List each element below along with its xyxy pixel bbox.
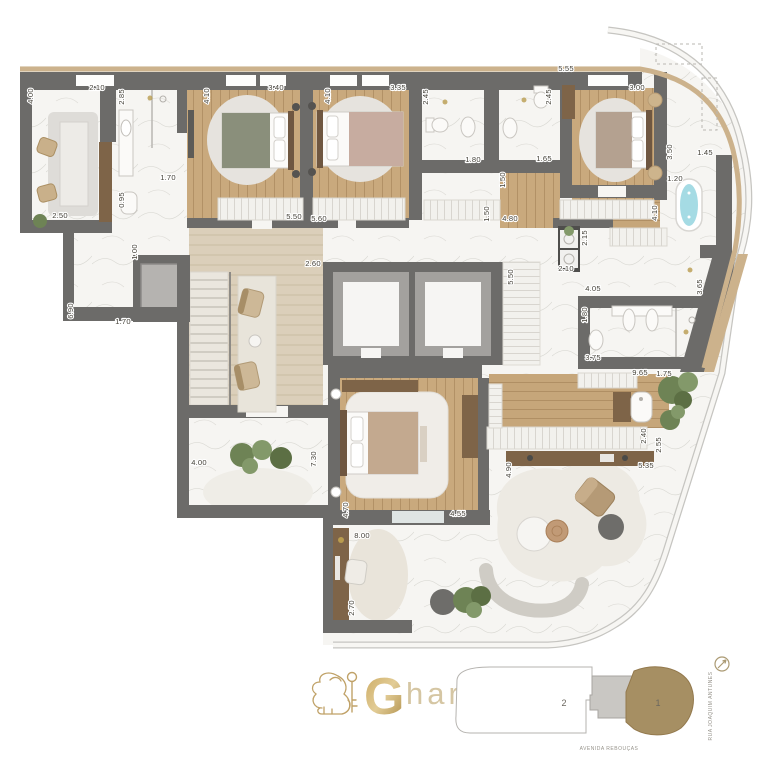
dimension-label: 2.10 xyxy=(89,83,105,92)
dimension-label: 2.70 xyxy=(347,600,356,616)
site-unit-1-label: 1 xyxy=(655,698,660,708)
dimension-label: 4.55 xyxy=(450,509,466,518)
dimension-label: 5.50 xyxy=(506,269,515,285)
dimension-label: 2.45 xyxy=(421,89,430,105)
logo-letter-g: G xyxy=(364,668,404,726)
dimension-label: 5.60 xyxy=(311,214,327,223)
dimension-label: 5.35 xyxy=(638,461,654,470)
dimension-label: 1.80 xyxy=(465,155,481,164)
dimension-label: 5.55 xyxy=(558,64,574,73)
dimension-label: 3.00 xyxy=(629,83,645,92)
dimension-label: 3.35 xyxy=(390,83,406,92)
dimension-label: 4.10 xyxy=(650,205,659,221)
floorplan-canvas: 4.002.102.854.103.404.103.352.452.455.55… xyxy=(0,0,768,768)
dimension-label: 3.65 xyxy=(695,279,704,295)
dimension-label: 3.40 xyxy=(268,83,284,92)
dimension-label: 0.95 xyxy=(117,192,126,208)
dimension-label: 2.10 xyxy=(558,264,574,273)
dimension-label: 1.80 xyxy=(580,307,589,323)
compass-icon xyxy=(715,657,729,671)
street-label-bottom: AVENIDA REBOUÇAS xyxy=(580,746,639,752)
dimension-label: 4.05 xyxy=(585,284,601,293)
dimension-label: 2.15 xyxy=(580,230,589,246)
staircase xyxy=(190,272,230,405)
family-room xyxy=(234,276,276,412)
dimension-label: 1.00 xyxy=(130,244,139,260)
dimension-label: 2.50 xyxy=(52,211,68,220)
dimension-label: 4.00 xyxy=(26,88,35,104)
key-icon xyxy=(348,673,358,713)
dimension-label: 4.80 xyxy=(502,214,518,223)
dimension-label: 1.50 xyxy=(498,172,507,188)
jacuzzi xyxy=(676,179,702,231)
dimension-label: 1.70 xyxy=(160,173,176,182)
dimension-label: 2.60 xyxy=(305,259,321,268)
logo-text-har: har xyxy=(406,676,463,711)
dimension-label: 1.50 xyxy=(482,206,491,222)
dimension-label: 1.65 xyxy=(536,154,552,163)
dimension-label: 1.45 xyxy=(697,148,713,157)
dimension-label: 6.90 xyxy=(66,303,75,319)
dimension-label: 1.75 xyxy=(656,369,672,378)
site-unit-2-label: 2 xyxy=(561,698,566,708)
dimension-label: 8.00 xyxy=(354,531,370,540)
dimension-label: 1.20 xyxy=(667,174,683,183)
dimension-label: 4.10 xyxy=(202,88,211,104)
dimension-label: 2.55 xyxy=(654,437,663,453)
dimension-label: 7.30 xyxy=(309,451,318,467)
dimension-label: 4.90 xyxy=(504,462,513,478)
floorplan-page: 4.002.102.854.103.404.103.352.452.455.55… xyxy=(0,0,768,768)
dimension-label: 3.75 xyxy=(585,353,601,362)
dimension-label: 4.00 xyxy=(191,458,207,467)
dimension-label: 2.40 xyxy=(639,428,648,444)
lion-key-icon xyxy=(313,673,350,714)
dimension-label: 2.85 xyxy=(117,89,126,105)
brand-logo: G har xyxy=(313,668,463,726)
dimension-label: 1.70 xyxy=(115,317,131,326)
dimension-label: 9.65 xyxy=(632,368,648,377)
street-label-right: RUA JOAQUIM ANTUNES xyxy=(708,671,714,740)
dimension-label: 3.50 xyxy=(665,144,674,160)
dimension-label: 5.50 xyxy=(286,212,302,221)
dimension-label: 2.45 xyxy=(544,89,553,105)
dimension-label: 4.10 xyxy=(323,88,332,104)
site-plan: 2 1 AVENIDA REBOUÇAS RUA JOAQUIM ANTUNES xyxy=(456,657,729,752)
site-building-2 xyxy=(456,667,604,733)
dimension-label: 4.70 xyxy=(341,502,350,518)
